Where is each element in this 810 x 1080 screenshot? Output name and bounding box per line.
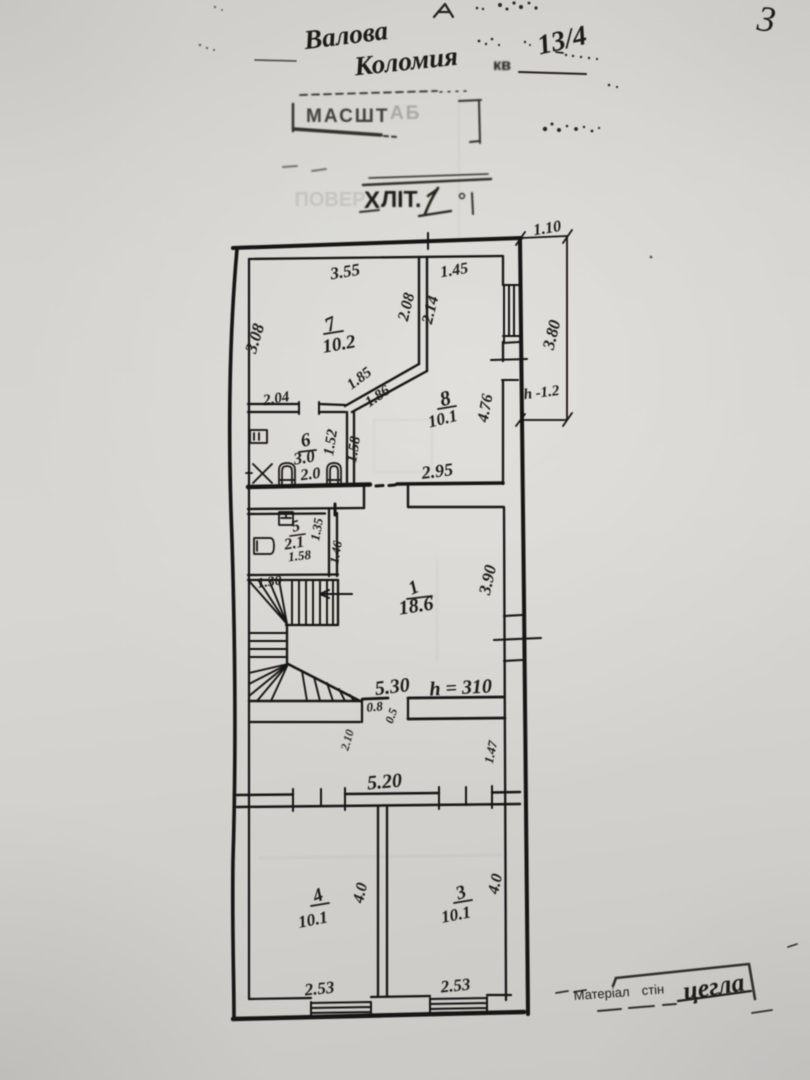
svg-text:3.08: 3.08 [241,321,268,356]
svg-text:МАСШТ: МАСШТ [306,106,390,127]
svg-text:4.0: 4.0 [485,872,506,896]
svg-text:2.10: 2.10 [337,728,357,753]
svg-text:13/4: 13/4 [534,20,589,61]
svg-text:0.5: 0.5 [382,706,400,725]
svg-text:1.85: 1.85 [344,364,375,393]
svg-text:2.53: 2.53 [303,977,336,999]
svg-text:5.20: 5.20 [366,770,403,795]
svg-text:2.08: 2.08 [395,291,419,323]
svg-text:Матеріал: Матеріал [573,984,630,1003]
svg-text:h = 310: h = 310 [429,675,493,700]
svg-text:3.80: 3.80 [539,317,565,352]
svg-text:1.58: 1.58 [344,435,364,464]
svg-text:4.76: 4.76 [474,393,496,425]
svg-text:4.0: 4.0 [350,881,371,905]
svg-text:h -1.2: h -1.2 [523,383,561,403]
svg-text:стін: стін [641,981,665,998]
svg-text:ПОВЕР: ПОВЕР [294,189,365,211]
svg-text:1.46: 1.46 [326,539,345,565]
svg-text:ЛІТ.: ЛІТ. [381,186,421,212]
svg-text:2.0: 2.0 [298,465,321,484]
svg-text:1.58: 1.58 [287,547,312,564]
svg-text:2.14: 2.14 [419,294,443,326]
svg-text:1.52: 1.52 [321,428,341,457]
svg-text:3.90: 3.90 [475,563,501,598]
svg-text:10.1: 10.1 [297,907,330,931]
svg-text:1.47: 1.47 [481,739,501,765]
svg-text:1.45: 1.45 [439,260,469,281]
svg-text:3.55: 3.55 [328,260,362,284]
svg-text:2.04: 2.04 [261,389,291,409]
svg-text:кв: кв [493,57,511,74]
svg-text:АБ: АБ [390,103,421,124]
svg-text:10.1: 10.1 [440,902,473,926]
svg-text:10.2: 10.2 [321,331,358,358]
svg-text:0.8: 0.8 [366,698,384,714]
svg-text:2.53: 2.53 [439,974,472,996]
svg-text:1.35: 1.35 [307,516,326,542]
svg-text:1.86: 1.86 [362,382,393,410]
svg-text:1.30: 1.30 [256,573,282,591]
svg-text:3: 3 [754,0,778,40]
svg-text:5.30: 5.30 [374,674,411,700]
